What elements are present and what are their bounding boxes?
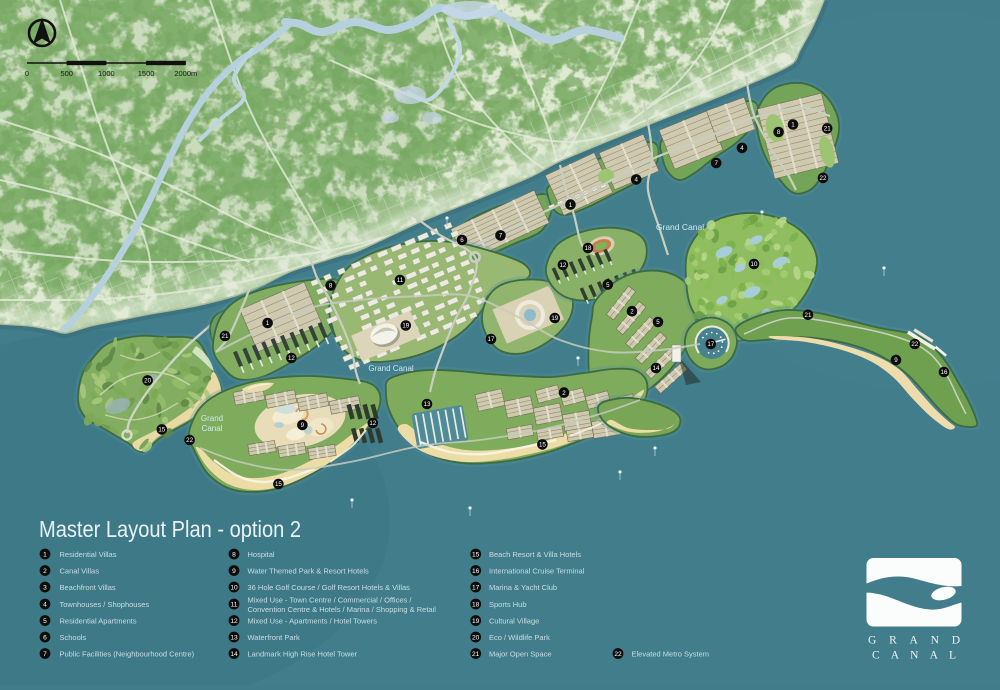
svg-text:1500: 1500 [138,69,155,78]
svg-text:9: 9 [301,422,305,429]
svg-text:21: 21 [805,312,812,319]
svg-text:Public Facilities (Neighbourho: Public Facilities (Neighbourhood Centre) [60,649,195,658]
svg-text:20: 20 [472,634,480,641]
svg-text:19: 19 [402,323,409,330]
svg-text:4: 4 [740,145,744,152]
svg-text:7: 7 [43,651,47,658]
svg-text:11: 11 [397,277,404,284]
svg-text:1: 1 [569,202,573,209]
svg-text:Landmark High Rise Hotel Tower: Landmark High Rise Hotel Tower [248,649,358,658]
svg-text:Beachfront Villas: Beachfront Villas [60,583,116,592]
svg-text:1000: 1000 [98,69,115,78]
svg-text:2: 2 [630,308,634,315]
svg-text:14: 14 [230,651,238,658]
svg-text:Grand: Grand [201,414,223,423]
svg-text:Townhouses / Shophouses: Townhouses / Shophouses [60,600,150,609]
svg-text:Sports Hub: Sports Hub [489,600,527,609]
svg-text:8: 8 [329,283,333,290]
svg-text:4: 4 [634,177,638,184]
svg-text:Eco / Wildlife Park: Eco / Wildlife Park [489,633,550,642]
svg-text:36 Hole Golf Course / Golf Res: 36 Hole Golf Course / Golf Resort Hotels… [248,583,411,592]
svg-text:Marina & Yacht Club: Marina & Yacht Club [489,583,557,592]
svg-text:12: 12 [559,262,566,269]
svg-text:Canal: Canal [202,424,223,433]
svg-text:20: 20 [144,378,151,385]
svg-text:Canal Villas: Canal Villas [60,566,100,575]
svg-text:7: 7 [499,233,503,240]
svg-text:12: 12 [230,618,238,625]
svg-text:2: 2 [43,568,47,575]
svg-text:Convention Centre & Hotels / M: Convention Centre & Hotels / Marina / Sh… [248,605,437,614]
svg-text:Waterfront Park: Waterfront Park [248,633,300,642]
svg-text:Mixed Use - Town Centre / Comm: Mixed Use - Town Centre / Commercial / O… [248,595,413,604]
svg-text:13: 13 [424,401,431,408]
svg-text:9: 9 [232,568,236,575]
svg-text:1: 1 [791,122,795,129]
svg-text:21: 21 [472,651,480,658]
svg-text:6: 6 [460,237,464,244]
svg-text:5: 5 [43,618,47,625]
svg-text:22: 22 [186,437,193,444]
svg-text:15: 15 [158,427,165,434]
svg-text:16: 16 [941,369,948,376]
svg-text:12: 12 [288,355,295,362]
svg-text:Water Themed Park & Resort Hot: Water Themed Park & Resort Hotels [248,566,370,575]
svg-text:Grand Canal: Grand Canal [656,222,704,232]
svg-text:1: 1 [43,551,47,558]
svg-text:12: 12 [369,420,376,427]
svg-text:2: 2 [562,390,566,397]
svg-text:6: 6 [43,634,47,641]
svg-text:4: 4 [43,601,47,608]
svg-text:Master Layout Plan - option 2: Master Layout Plan - option 2 [39,516,301,542]
svg-text:8: 8 [777,129,781,136]
svg-text:17: 17 [472,584,480,591]
svg-text:Mixed Use - Apartments / Hotel: Mixed Use - Apartments / Hotel Towers [248,616,378,625]
svg-text:17: 17 [488,336,495,343]
svg-text:8: 8 [232,551,236,558]
svg-text:21: 21 [222,333,229,340]
svg-text:1: 1 [266,320,270,327]
svg-text:Major Open Space: Major Open Space [489,649,552,658]
svg-text:15: 15 [539,442,546,449]
svg-text:0: 0 [25,69,29,78]
svg-text:International Cruise Terminal: International Cruise Terminal [489,566,585,575]
svg-text:10: 10 [751,261,758,268]
svg-text:Residential Villas: Residential Villas [60,550,117,559]
svg-text:3: 3 [43,584,47,591]
svg-text:17: 17 [707,341,714,348]
svg-text:18: 18 [472,601,480,608]
svg-text:19: 19 [551,315,558,322]
svg-text:15: 15 [275,481,282,488]
svg-text:500: 500 [60,69,73,78]
svg-text:Schools: Schools [60,633,87,642]
svg-text:5: 5 [606,282,610,289]
svg-text:Grand Canal: Grand Canal [368,364,414,373]
svg-text:9: 9 [894,357,898,364]
svg-text:11: 11 [231,601,238,608]
svg-text:14: 14 [653,365,660,372]
svg-text:Hospital: Hospital [248,550,275,559]
svg-text:21: 21 [824,126,831,133]
svg-text:Elevated Metro System: Elevated Metro System [632,649,710,658]
svg-text:10: 10 [230,584,238,591]
svg-text:Beach Resort & Villa Hotels: Beach Resort & Villa Hotels [489,550,581,559]
svg-text:19: 19 [472,618,480,625]
svg-text:16: 16 [472,568,480,575]
svg-text:7: 7 [714,160,718,167]
svg-text:5: 5 [656,319,660,326]
svg-text:22: 22 [614,651,622,658]
svg-text:Residential Apartments: Residential Apartments [60,616,137,625]
svg-text:22: 22 [911,341,918,348]
svg-text:2000m: 2000m [174,69,197,78]
svg-text:22: 22 [820,175,827,182]
svg-text:18: 18 [585,245,592,252]
svg-text:13: 13 [230,634,238,641]
svg-text:15: 15 [472,551,480,558]
svg-text:Cultural Village: Cultural Village [489,616,539,625]
